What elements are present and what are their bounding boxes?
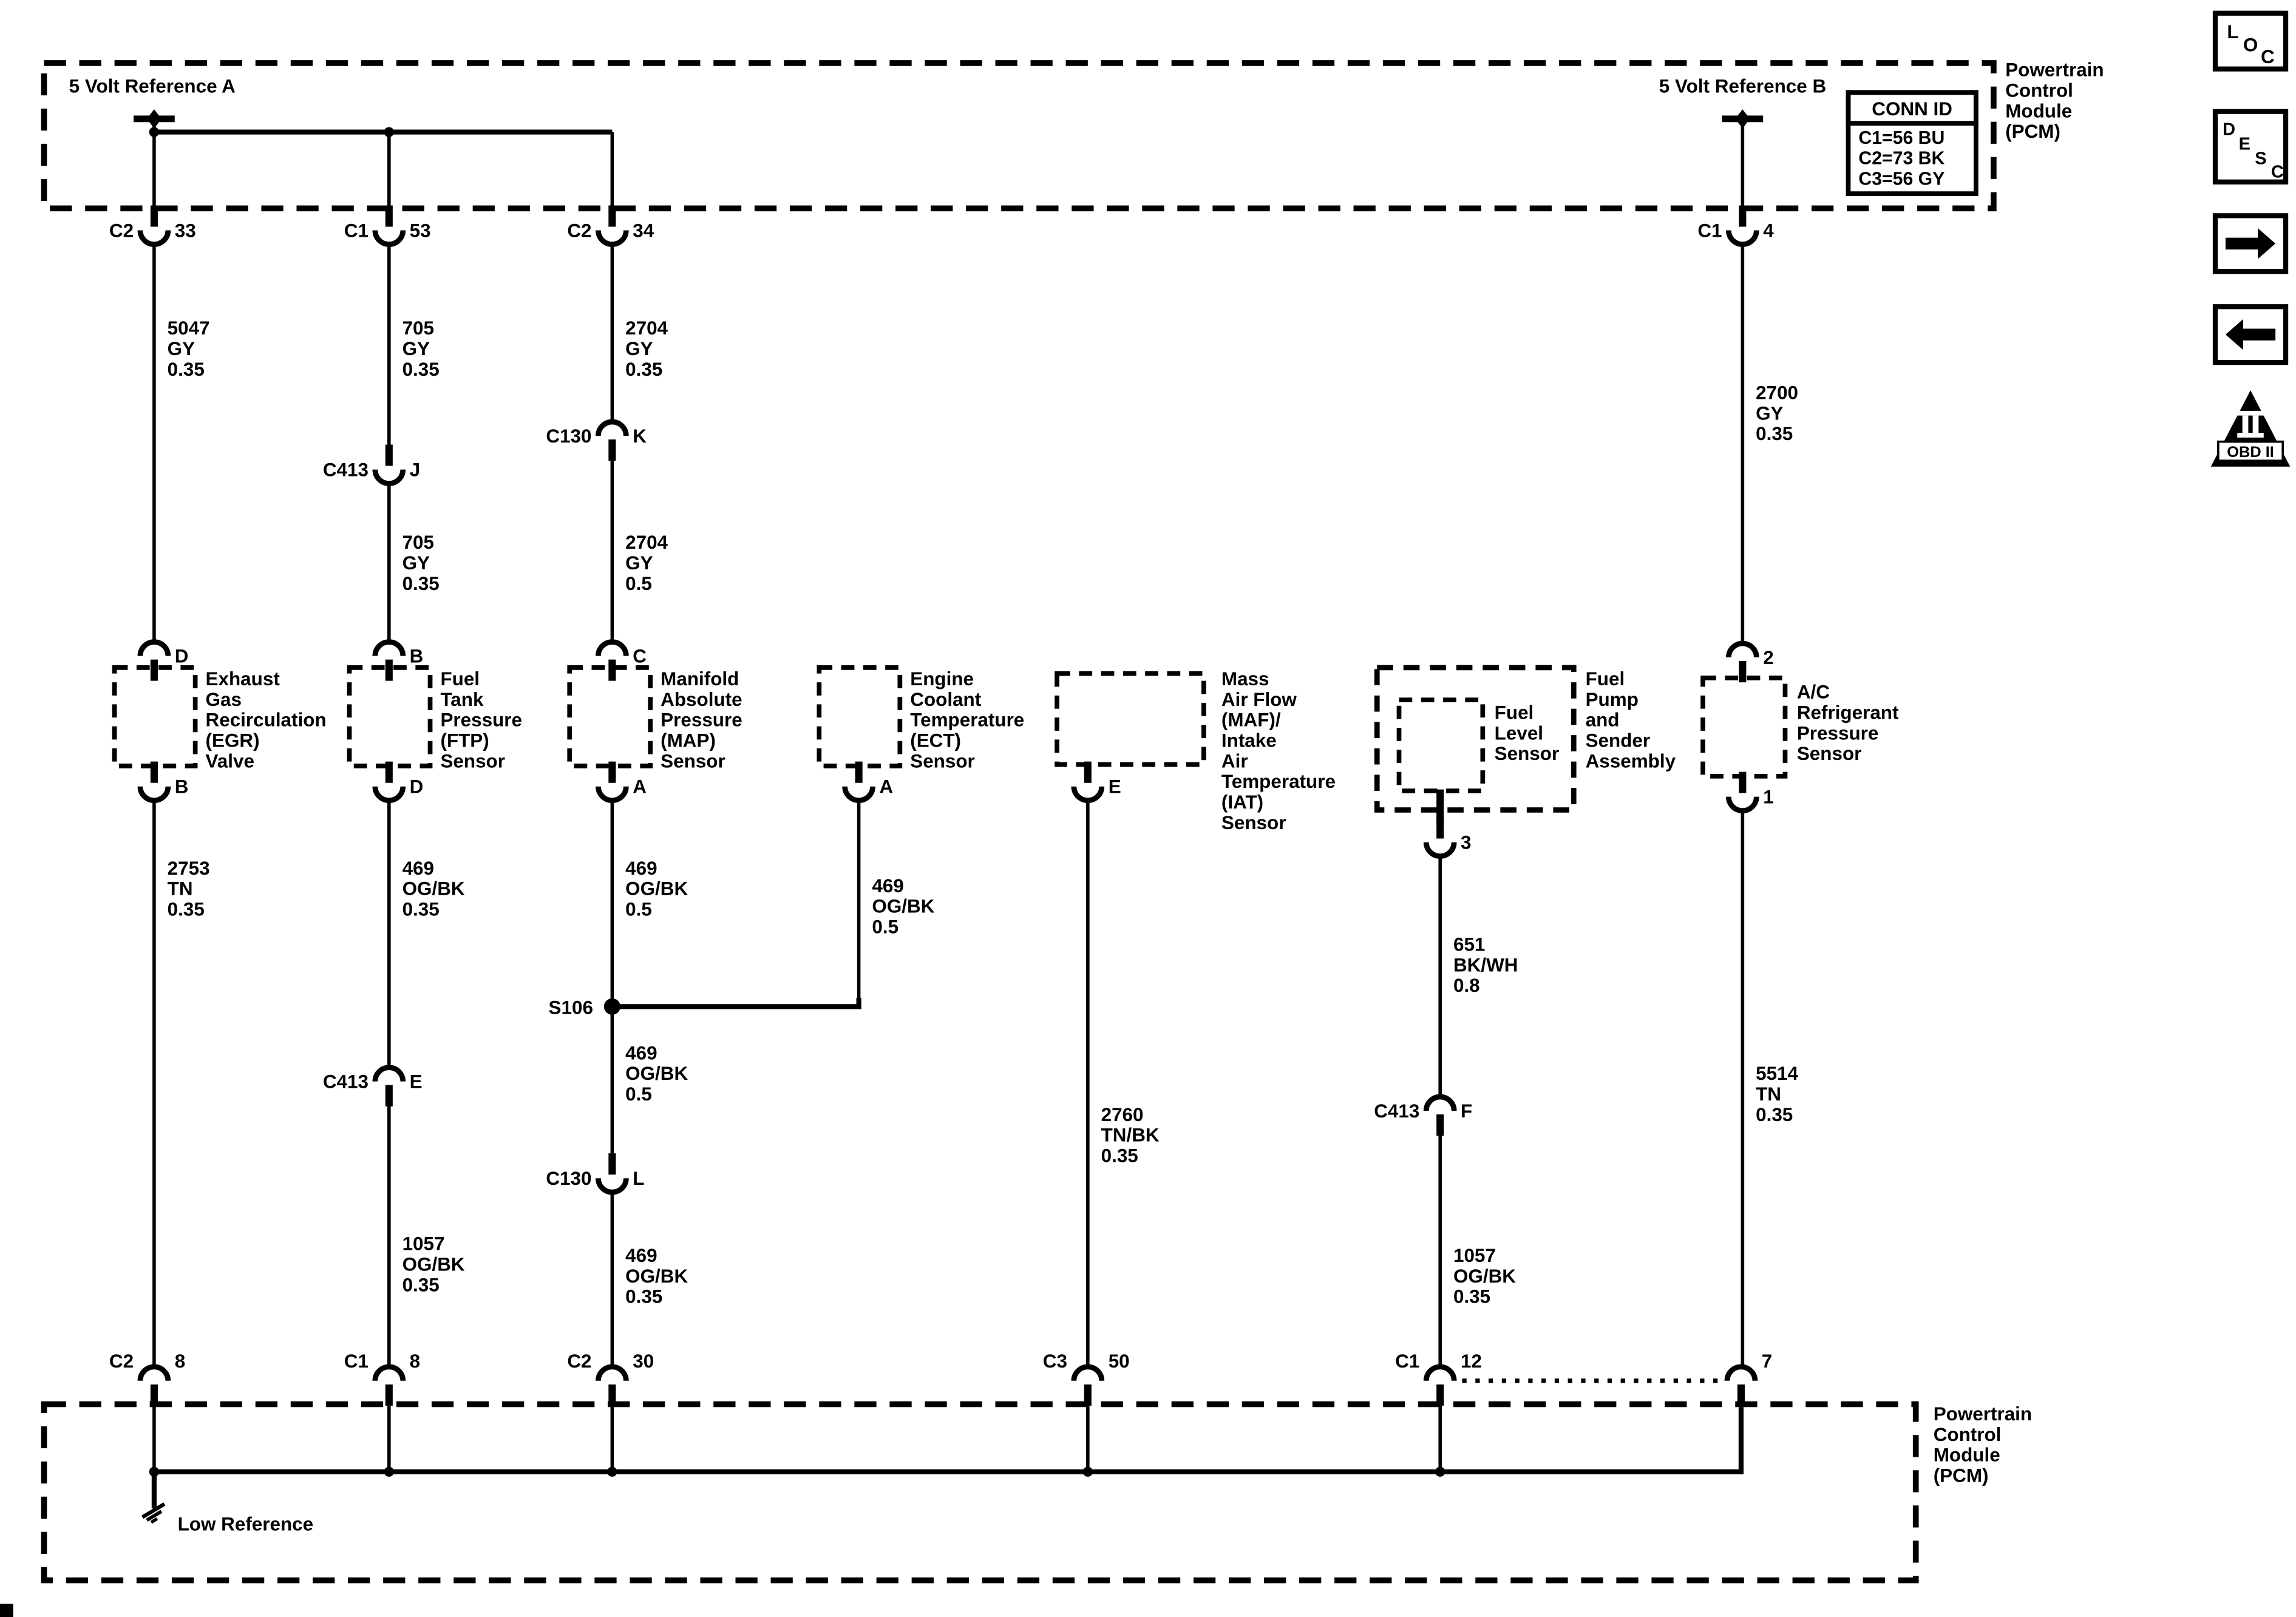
connector-cup bbox=[140, 787, 168, 801]
desc-icon[interactable]: DESC bbox=[2215, 112, 2286, 182]
connector-pin-label: 33 bbox=[175, 220, 196, 241]
forward-arrow-icon[interactable] bbox=[2215, 215, 2286, 271]
connector-c413-e: C413E bbox=[323, 1068, 423, 1107]
connector-dome bbox=[140, 642, 168, 656]
connector-pin-label: A bbox=[879, 776, 893, 798]
connector-id-label: C413 bbox=[323, 459, 369, 480]
ftp-sensor-label: FuelTankPressure(FTP)Sensor bbox=[440, 668, 522, 771]
wire-2760-label: 2760TN/BK0.35 bbox=[1101, 1104, 1160, 1167]
maf-iat-box bbox=[1057, 674, 1204, 765]
connector-c413-f: C413F bbox=[1374, 1097, 1472, 1136]
egr-valve-label: ExhaustGasRecirculation(EGR)Valve bbox=[206, 668, 327, 771]
connector-id-label: C2 bbox=[109, 220, 134, 241]
obd-pillar-top bbox=[2237, 411, 2264, 416]
wire bbox=[154, 1407, 1741, 1508]
conn-id-title: CONN ID bbox=[1872, 98, 1952, 120]
connector-dome bbox=[375, 1068, 403, 1082]
connector-id-label: C2 bbox=[567, 220, 591, 241]
wire bbox=[618, 998, 859, 1007]
map-box bbox=[569, 668, 650, 766]
connector-dome bbox=[375, 1367, 403, 1381]
wire-469-map-label: 469OG/BK0.5 bbox=[625, 858, 688, 920]
junction-dot bbox=[384, 1466, 394, 1476]
wire-705-upper: 705GY0.35 bbox=[402, 317, 440, 380]
connector-id-label: C1 bbox=[344, 220, 369, 241]
pcm-top-label: PowertrainControlModule(PCM) bbox=[2005, 59, 2104, 143]
pin-egr-d: D bbox=[140, 642, 189, 681]
connector-cup bbox=[845, 787, 873, 801]
pcm-5v-reference-wiring-diagram: S106C233C153C234C14C413JC130KC413EC130LC… bbox=[0, 0, 2296, 1617]
wire-705-lower-label: 705GY0.35 bbox=[402, 532, 440, 594]
desc-letter: C bbox=[2271, 163, 2284, 182]
connector-dome bbox=[598, 422, 626, 436]
connector-id-label: C413 bbox=[323, 1071, 369, 1093]
five-volt-ref-b-terminal bbox=[1722, 109, 1764, 128]
terminal-diamond bbox=[147, 109, 161, 128]
connector-pin-label: 53 bbox=[410, 220, 431, 241]
connector-dome bbox=[1426, 1367, 1454, 1381]
connector-pin-label: 50 bbox=[1109, 1351, 1130, 1372]
wire-469-below-s106-label: 469OG/BK0.5 bbox=[625, 1042, 688, 1105]
fuel-level-sensor-labelgroup: FuelLevelSensor bbox=[1495, 702, 1560, 765]
connector-pin-label: 8 bbox=[175, 1351, 185, 1372]
wire-2704-lower: 2704GY0.5 bbox=[625, 532, 668, 594]
connector-pin-label: 3 bbox=[1461, 832, 1471, 853]
conn-id-row: C3=56 GY bbox=[1858, 169, 1944, 189]
wire-469-ftp-label: 469OG/BK0.35 bbox=[402, 858, 465, 920]
wire-2760: 2760TN/BK0.35 bbox=[1101, 1104, 1160, 1167]
wire-5047: 5047GY0.35 bbox=[168, 317, 210, 380]
wire-2753-label: 2753TN0.35 bbox=[168, 858, 210, 920]
conn-id-row: C1=56 BU bbox=[1858, 128, 1944, 148]
ac-refrigerant-pressure-sensor-labelgroup: A/CRefrigerantPressureSensor bbox=[1797, 682, 1899, 765]
wire-705-upper-label: 705GY0.35 bbox=[402, 317, 440, 380]
fuel-level-sensor-label: FuelLevelSensor bbox=[1495, 702, 1560, 765]
connector-dome bbox=[1727, 1367, 1755, 1381]
wire-2704-lower-label: 2704GY0.5 bbox=[625, 532, 668, 594]
junction-dot bbox=[149, 127, 159, 137]
ect-sensor-labelgroup: EngineCoolantTemperature(ECT)Sensor bbox=[910, 668, 1024, 771]
wire-469-below-s106: 469OG/BK0.5 bbox=[625, 1042, 688, 1105]
junction-dot bbox=[1083, 1466, 1093, 1476]
wire-5514-label: 5514TN0.35 bbox=[1756, 1063, 1798, 1125]
connector-id-label: C413 bbox=[1374, 1100, 1419, 1122]
connector-pin-label: 1 bbox=[1763, 787, 1773, 808]
connector-cup bbox=[1074, 787, 1102, 801]
pin-fuel-3: 3 bbox=[1426, 818, 1471, 856]
connector-dome bbox=[1074, 1367, 1102, 1381]
connector-id-label: C1 bbox=[344, 1351, 369, 1372]
fuel-pump-sender-assembly-labelgroup: FuelPumpandSenderAssembly bbox=[1586, 668, 1676, 771]
splice-s106: S106 bbox=[549, 997, 620, 1018]
connector-pin-label: B bbox=[175, 776, 189, 798]
connector-id-label: C1 bbox=[1697, 220, 1722, 241]
loc-letter: O bbox=[2243, 35, 2258, 56]
pin-ftp-b: B bbox=[375, 642, 424, 681]
maf-iat-sensor-labelgroup: MassAir Flow(MAF)/IntakeAirTemperature(I… bbox=[1221, 668, 1336, 833]
connector-cup bbox=[1728, 797, 1756, 811]
junction-dot bbox=[149, 1466, 159, 1476]
connector-pin-label: 12 bbox=[1461, 1351, 1482, 1372]
connector-c130-l: C130L bbox=[546, 1153, 644, 1192]
page-artifact bbox=[0, 1604, 13, 1617]
connector-pin-label: 7 bbox=[1762, 1351, 1772, 1372]
connector-cup bbox=[375, 470, 403, 484]
wire-2753: 2753TN0.35 bbox=[168, 858, 210, 920]
wire-2700: 2700GY0.35 bbox=[1756, 382, 1798, 445]
connector-pin-label: 30 bbox=[633, 1351, 654, 1372]
desc-letter: S bbox=[2255, 149, 2266, 169]
wire-651-label: 651BK/WH0.8 bbox=[1453, 934, 1518, 996]
wire-1057-fuel-col-label: 1057OG/BK0.35 bbox=[1453, 1245, 1516, 1307]
connector-dome bbox=[375, 642, 403, 656]
wire-469-map: 469OG/BK0.5 bbox=[625, 858, 688, 920]
obd-ii-text: OBD II bbox=[2227, 444, 2274, 461]
ftp-box bbox=[350, 668, 430, 766]
wire-2704-upper-label: 2704GY0.35 bbox=[625, 317, 668, 380]
wire-1057-ftp-col: 1057OG/BK0.35 bbox=[402, 1233, 465, 1296]
connector-pin-label: J bbox=[410, 459, 420, 480]
wire-2700-label: 2700GY0.35 bbox=[1756, 382, 1798, 445]
junction-dot bbox=[607, 1466, 617, 1476]
back-arrow-icon[interactable] bbox=[2215, 307, 2286, 362]
connector-c413-j: C413J bbox=[323, 444, 420, 483]
connector-cup bbox=[1426, 842, 1454, 856]
desc-letter: D bbox=[2223, 120, 2235, 139]
pcm-bottom-box bbox=[44, 1404, 1916, 1580]
connector-id-label: C130 bbox=[546, 1168, 591, 1189]
connector-pin-label: A bbox=[633, 776, 647, 798]
connector-id-label: C1 bbox=[1395, 1351, 1419, 1372]
wire-2704-upper: 2704GY0.35 bbox=[625, 317, 668, 380]
wire-469-ftp: 469OG/BK0.35 bbox=[402, 858, 465, 920]
ac-box bbox=[1703, 678, 1785, 776]
wire-705-lower: 705GY0.35 bbox=[402, 532, 440, 594]
fuel-level-inner-box bbox=[1399, 700, 1483, 791]
wire-1057-fuel-col: 1057OG/BK0.35 bbox=[1453, 1245, 1516, 1307]
connector-pin-label: L bbox=[633, 1168, 644, 1189]
connector-dome bbox=[1426, 1097, 1454, 1111]
pcm-bottom-label: PowertrainControlModule(PCM) bbox=[1934, 1403, 2032, 1486]
connector-id-label: C130 bbox=[546, 425, 591, 447]
map-sensor-label: ManifoldAbsolutePressure(MAP)Sensor bbox=[661, 668, 742, 771]
connector-cup bbox=[598, 231, 626, 245]
loc-letter: L bbox=[2227, 21, 2238, 42]
wire bbox=[151, 1519, 157, 1522]
connector-id-label: C2 bbox=[567, 1351, 591, 1372]
maf-iat-sensor-label: MassAir Flow(MAF)/IntakeAirTemperature(I… bbox=[1221, 668, 1336, 833]
egr-valve-labelgroup: ExhaustGasRecirculation(EGR)Valve bbox=[206, 668, 327, 771]
connector-cup bbox=[598, 787, 626, 801]
pin-maf-e: E bbox=[1074, 762, 1121, 801]
connector-dome bbox=[598, 1367, 626, 1381]
map-sensor-labelgroup: ManifoldAbsolutePressure(MAP)Sensor bbox=[661, 668, 742, 771]
connector-c1-8: C18 bbox=[344, 1351, 420, 1406]
boxes bbox=[44, 63, 1994, 1581]
ac-refrigerant-pressure-sensor-label: A/CRefrigerantPressureSensor bbox=[1797, 682, 1899, 765]
wire-5047-label: 5047GY0.35 bbox=[168, 317, 210, 380]
obd-pillar-col bbox=[2243, 416, 2249, 433]
wire-469-ect: 469OG/BK0.5 bbox=[872, 875, 934, 938]
junction-dot bbox=[384, 127, 394, 137]
wire-5514: 5514TN0.35 bbox=[1756, 1063, 1798, 1125]
pin-map-c: C bbox=[598, 642, 647, 681]
connector-pin-7: 7 bbox=[1727, 1351, 1772, 1406]
wiring-diagram-page: S106C233C153C234C14C413JC130KC413EC130LC… bbox=[0, 0, 2296, 1617]
low-reference-label: Low Reference bbox=[178, 1513, 314, 1534]
five-volt-reference-a-label: 5 Volt Reference A bbox=[69, 75, 236, 97]
connector-cup bbox=[1728, 231, 1756, 245]
wire-469-ect-label: 469OG/BK0.5 bbox=[872, 875, 934, 938]
connector-pin-label: 8 bbox=[410, 1351, 420, 1372]
connector-pin-label: D bbox=[175, 645, 189, 666]
connector-dome bbox=[1728, 643, 1756, 657]
connector-pin-label: B bbox=[410, 645, 424, 666]
connector-id-label: C3 bbox=[1043, 1351, 1067, 1372]
connector-cup bbox=[598, 1178, 626, 1192]
obd-pillar-bottom bbox=[2237, 433, 2264, 438]
five-volt-ref-a-terminal bbox=[134, 109, 175, 128]
wire-1057-ftp-col-label: 1057OG/BK0.35 bbox=[402, 1233, 465, 1296]
wire-651: 651BK/WH0.8 bbox=[1453, 934, 1518, 996]
terminal-diamond bbox=[1735, 109, 1750, 128]
connector-pin-label: F bbox=[1461, 1100, 1472, 1122]
connector-pin-label: E bbox=[1109, 776, 1121, 798]
connector-pin-label: 2 bbox=[1763, 647, 1773, 668]
connector-dome bbox=[140, 1367, 168, 1381]
connector-c130-k: C130K bbox=[546, 422, 647, 461]
connector-pin-label: D bbox=[410, 776, 424, 798]
connector-cup bbox=[375, 787, 403, 801]
junction-dot bbox=[1435, 1466, 1445, 1476]
ect-box bbox=[819, 668, 900, 766]
ftp-sensor-labelgroup: FuelTankPressure(FTP)Sensor bbox=[440, 668, 522, 771]
connector-id-label: C2 bbox=[109, 1351, 134, 1372]
splice-dot bbox=[604, 998, 620, 1015]
desc-letter: E bbox=[2239, 135, 2250, 154]
conn-id-row: C2=73 BK bbox=[1858, 149, 1944, 169]
wire-469-after-l: 469OG/BK0.35 bbox=[625, 1245, 688, 1307]
wire-469-after-l-label: 469OG/BK0.35 bbox=[625, 1245, 688, 1307]
connector-c2-8: C28 bbox=[109, 1351, 185, 1406]
connector-pin-label: 34 bbox=[633, 220, 654, 241]
five-volt-reference-b-label: 5 Volt Reference B bbox=[1659, 75, 1826, 97]
conn-id-table: CONN IDC1=56 BUC2=73 BKC3=56 GY bbox=[1848, 92, 1975, 194]
connector-pin-label: C bbox=[633, 645, 647, 666]
obd-ii-icon[interactable]: OBD II bbox=[2211, 390, 2291, 467]
splice-label: S106 bbox=[549, 997, 593, 1018]
egr-box bbox=[115, 668, 195, 766]
ect-sensor-label: EngineCoolantTemperature(ECT)Sensor bbox=[910, 668, 1024, 771]
fuel-pump-sender-assembly-label: FuelPumpandSenderAssembly bbox=[1586, 668, 1676, 771]
loc-icon[interactable]: LOC bbox=[2215, 13, 2286, 69]
connector-pin-label: E bbox=[410, 1071, 423, 1093]
connector-cup bbox=[375, 231, 403, 245]
connector-pin-label: 4 bbox=[1763, 220, 1774, 241]
connector-pin-label: K bbox=[633, 425, 647, 447]
obd-pillar-col bbox=[2253, 416, 2259, 433]
connector-dome bbox=[598, 642, 626, 656]
loc-letter: C bbox=[2261, 46, 2275, 67]
connector-cup bbox=[140, 231, 168, 245]
